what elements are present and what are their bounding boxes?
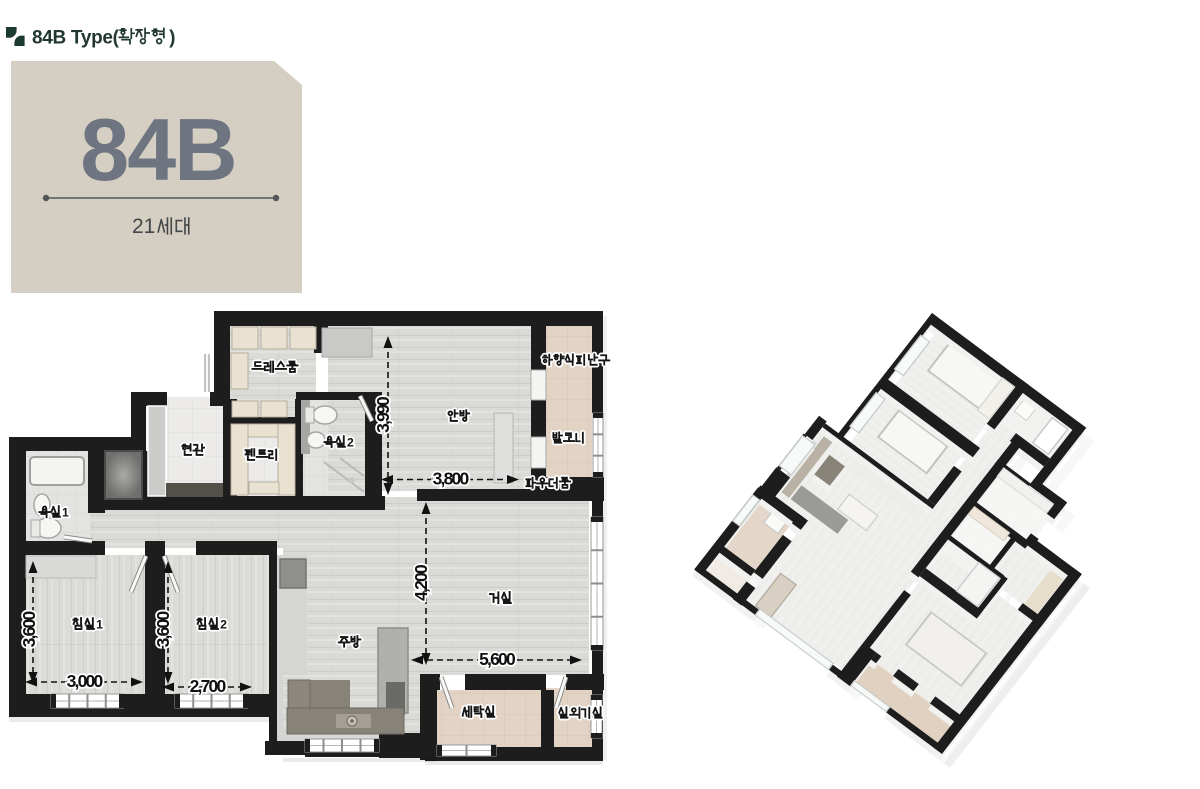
- svg-text:3,990: 3,990: [373, 396, 393, 433]
- svg-text:21: 21: [132, 215, 155, 238]
- svg-text:2: 2: [347, 436, 354, 450]
- svg-text:1: 1: [96, 618, 103, 632]
- svg-text:84B Type(: 84B Type(: [32, 28, 120, 49]
- svg-text:5,600: 5,600: [479, 649, 516, 669]
- svg-text:3,600: 3,600: [19, 611, 39, 648]
- svg-text:2: 2: [220, 618, 227, 632]
- svg-text:2,700: 2,700: [190, 676, 227, 696]
- svg-text:): ): [169, 28, 175, 49]
- svg-text:84B: 84B: [80, 100, 235, 199]
- svg-text:3,000: 3,000: [67, 671, 104, 691]
- svg-text:3,800: 3,800: [433, 469, 470, 489]
- svg-text:3,600: 3,600: [153, 611, 173, 648]
- svg-text:1: 1: [62, 506, 69, 520]
- svg-text:4,200: 4,200: [411, 564, 431, 601]
